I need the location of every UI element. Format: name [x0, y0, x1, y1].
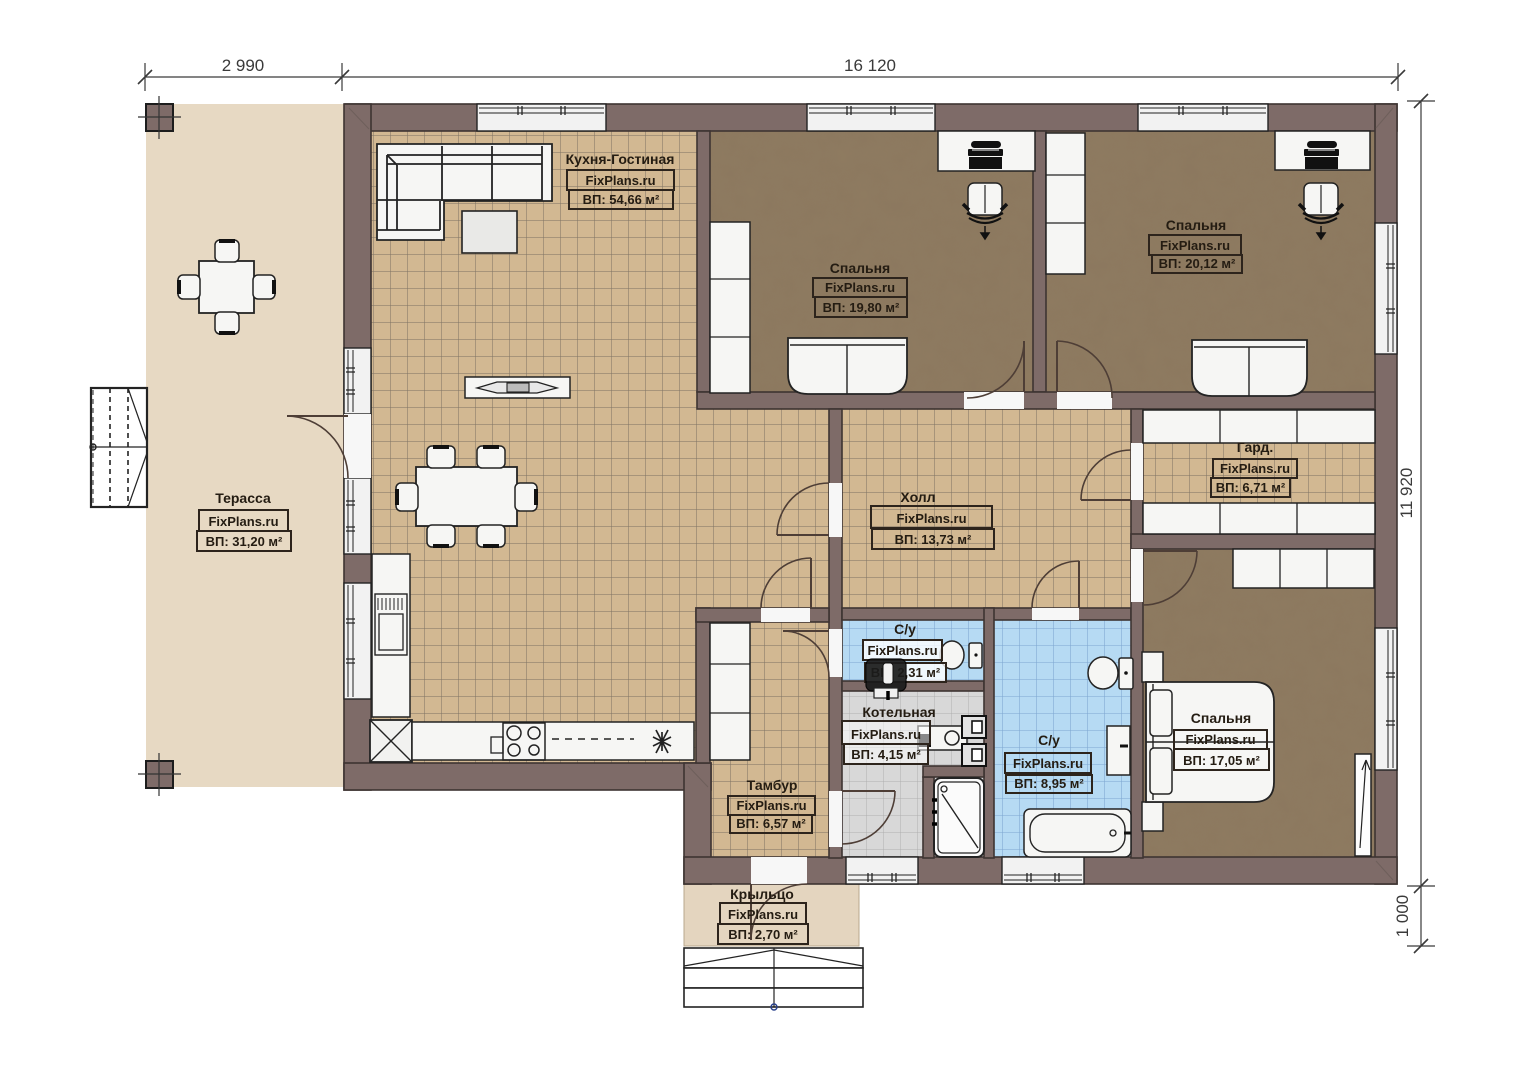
svg-text:ВП: 31,20 м²: ВП: 31,20 м² [206, 534, 283, 549]
svg-text:1 000: 1 000 [1393, 895, 1412, 938]
svg-text:Котельная: Котельная [862, 704, 935, 720]
svg-text:FixPlans.ru: FixPlans.ru [851, 727, 921, 742]
svg-text:ВП: 20,12 м²: ВП: 20,12 м² [1159, 256, 1236, 271]
svg-text:16 120: 16 120 [844, 56, 896, 75]
svg-text:FixPlans.ru: FixPlans.ru [896, 511, 966, 526]
svg-text:FixPlans.ru: FixPlans.ru [736, 798, 806, 813]
svg-text:2 990: 2 990 [222, 56, 265, 75]
svg-text:С/у: С/у [1038, 732, 1060, 748]
svg-text:Тамбур: Тамбур [747, 777, 798, 793]
svg-text:Гард.: Гард. [1237, 439, 1274, 455]
svg-text:С/у: С/у [894, 621, 916, 637]
svg-text:Кухня-Гостиная: Кухня-Гостиная [566, 151, 675, 167]
svg-text:ВП: 6,71 м²: ВП: 6,71 м² [1216, 480, 1286, 495]
svg-text:FixPlans.ru: FixPlans.ru [585, 173, 655, 188]
svg-text:Холл: Холл [900, 489, 935, 505]
svg-text:FixPlans.ru: FixPlans.ru [867, 643, 937, 658]
svg-text:ВП: 19,80 м²: ВП: 19,80 м² [823, 300, 900, 315]
svg-text:ВП: 54,66 м²: ВП: 54,66 м² [583, 192, 660, 207]
svg-text:11 920: 11 920 [1397, 468, 1416, 519]
svg-text:ВП: 13,73 м²: ВП: 13,73 м² [895, 532, 972, 547]
svg-text:FixPlans.ru: FixPlans.ru [1185, 732, 1255, 747]
svg-text:ВП: 2,70 м²: ВП: 2,70 м² [728, 927, 798, 942]
svg-text:ВП: 8,95 м²: ВП: 8,95 м² [1014, 776, 1084, 791]
svg-text:FixPlans.ru: FixPlans.ru [1220, 461, 1290, 476]
svg-text:Спальня: Спальня [830, 260, 890, 276]
svg-text:Спальня: Спальня [1166, 217, 1226, 233]
svg-text:Терасса: Терасса [215, 490, 271, 506]
svg-text:FixPlans.ru: FixPlans.ru [208, 514, 278, 529]
svg-text:ВП: 4,15 м²: ВП: 4,15 м² [851, 747, 921, 762]
svg-text:ВП: 17,05 м²: ВП: 17,05 м² [1183, 753, 1260, 768]
svg-text:FixPlans.ru: FixPlans.ru [825, 280, 895, 295]
svg-text:FixPlans.ru: FixPlans.ru [1013, 756, 1083, 771]
svg-text:ВП: 6,57 м²: ВП: 6,57 м² [736, 816, 806, 831]
svg-text:FixPlans.ru: FixPlans.ru [728, 907, 798, 922]
svg-text:Спальня: Спальня [1191, 710, 1251, 726]
svg-text:Крыльцо: Крыльцо [730, 886, 794, 902]
svg-text:FixPlans.ru: FixPlans.ru [1160, 238, 1230, 253]
